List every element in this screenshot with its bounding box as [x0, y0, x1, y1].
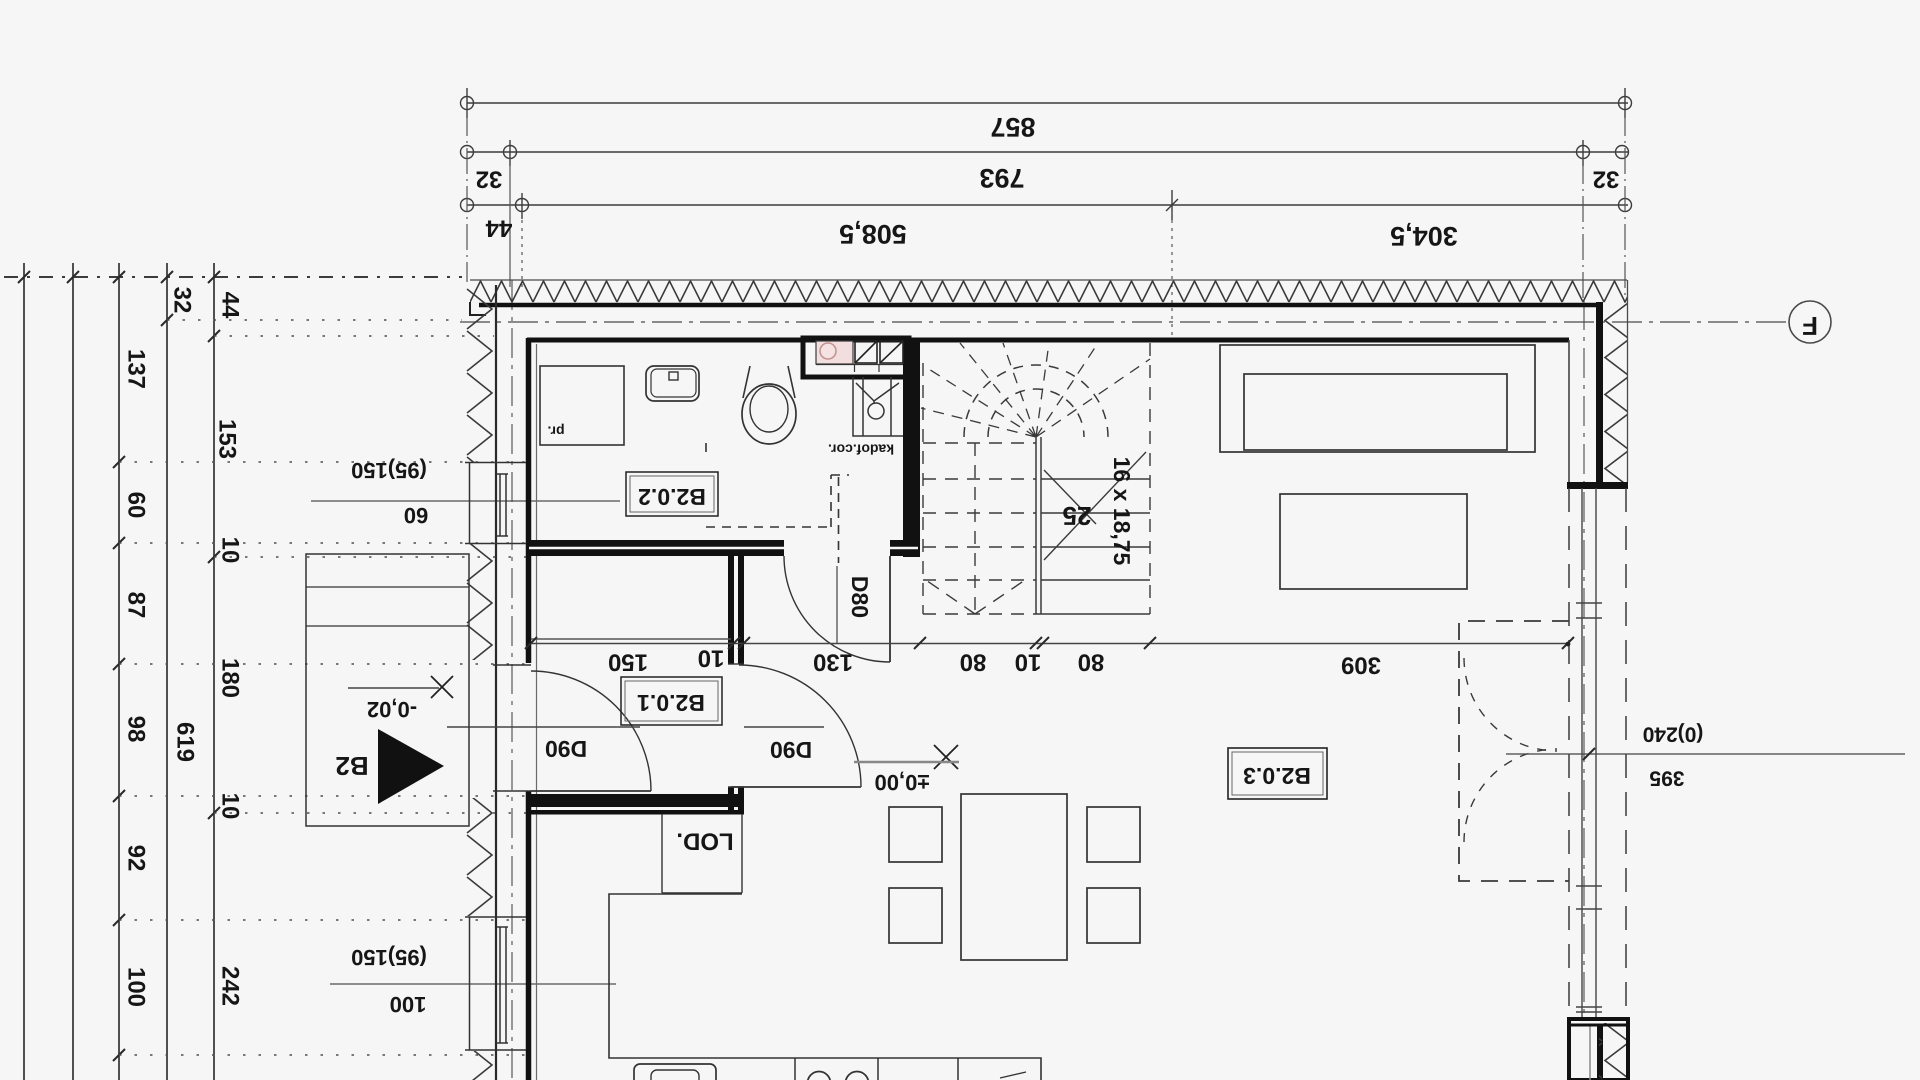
svg-text:242: 242 — [217, 966, 244, 1006]
svg-text:B2.0.1: B2.0.1 — [637, 690, 705, 716]
svg-text:80: 80 — [960, 649, 987, 676]
svg-text:-0,02: -0,02 — [367, 697, 417, 722]
svg-text:60: 60 — [404, 503, 428, 528]
svg-text:LOD.: LOD. — [676, 828, 733, 855]
svg-text:(0)240: (0)240 — [1643, 722, 1704, 745]
svg-text:44: 44 — [485, 215, 512, 242]
svg-text:D80: D80 — [847, 576, 873, 618]
svg-text:B2.0.2: B2.0.2 — [638, 484, 706, 510]
svg-text:(95)150: (95)150 — [351, 945, 427, 970]
svg-text:87: 87 — [123, 592, 150, 619]
svg-text:309: 309 — [1341, 652, 1381, 679]
svg-text:137: 137 — [123, 349, 150, 389]
svg-text:100: 100 — [390, 992, 427, 1017]
svg-text:±0,00: ±0,00 — [875, 770, 930, 795]
svg-text:130: 130 — [813, 649, 853, 676]
svg-text:619: 619 — [172, 722, 199, 762]
svg-text:60: 60 — [123, 492, 150, 519]
svg-text:B2.0.3: B2.0.3 — [1243, 763, 1311, 789]
svg-text:(95)150: (95)150 — [351, 458, 427, 483]
svg-text:32: 32 — [169, 287, 196, 314]
svg-text:32: 32 — [1593, 166, 1620, 193]
svg-text:D90: D90 — [770, 737, 812, 763]
svg-text:80: 80 — [1078, 649, 1105, 676]
svg-text:98: 98 — [123, 716, 150, 743]
svg-text:153: 153 — [214, 419, 241, 459]
svg-text:10: 10 — [217, 537, 244, 564]
svg-text:395: 395 — [1649, 766, 1684, 789]
svg-text:180: 180 — [217, 658, 244, 698]
svg-text:10: 10 — [1015, 649, 1042, 676]
svg-text:304,5: 304,5 — [1390, 221, 1458, 251]
svg-text:32: 32 — [476, 166, 503, 193]
svg-text:16 x 18,75: 16 x 18,75 — [1109, 457, 1135, 566]
svg-text:F: F — [1802, 311, 1818, 341]
svg-text:D90: D90 — [545, 736, 587, 762]
svg-text:10: 10 — [217, 793, 244, 820]
svg-text:508,5: 508,5 — [839, 219, 907, 249]
svg-text:pr.: pr. — [547, 423, 564, 439]
svg-text:150: 150 — [608, 649, 648, 676]
svg-text:44: 44 — [217, 292, 244, 319]
svg-text:B2: B2 — [335, 751, 368, 781]
svg-text:25: 25 — [1063, 501, 1092, 531]
svg-text:10: 10 — [698, 645, 725, 672]
svg-text:857: 857 — [990, 112, 1035, 142]
svg-text:100: 100 — [123, 967, 150, 1007]
svg-text:793: 793 — [979, 163, 1024, 193]
svg-text:kadof.cor.: kadof.cor. — [828, 441, 894, 457]
svg-text:92: 92 — [123, 845, 150, 872]
